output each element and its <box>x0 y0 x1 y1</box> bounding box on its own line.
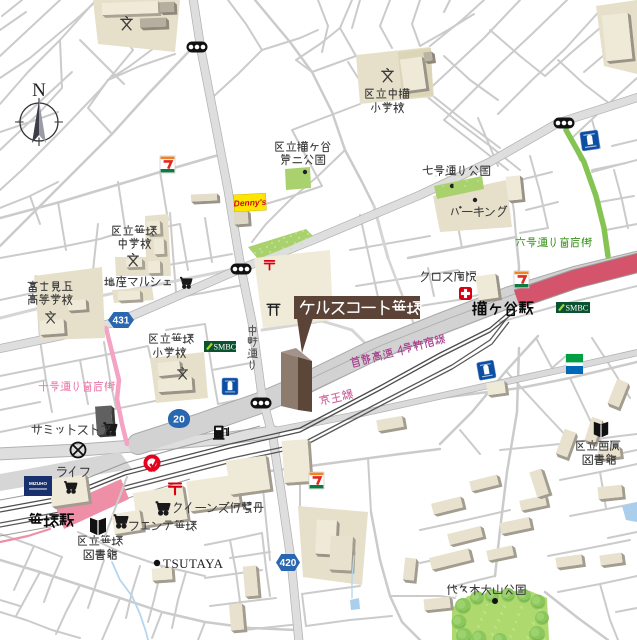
svg-text:MIZUHO: MIZUHO <box>29 481 48 486</box>
svg-text:20: 20 <box>173 414 185 426</box>
svg-text:431: 431 <box>113 316 130 327</box>
svg-text:N: N <box>32 80 46 101</box>
svg-text:LIFE: LIFE <box>149 469 156 473</box>
svg-text:420: 420 <box>280 558 297 569</box>
svg-text:SMBC: SMBC <box>214 342 237 351</box>
svg-text:SMBC: SMBC <box>566 303 589 312</box>
svg-text:Denny's: Denny's <box>233 197 266 209</box>
svg-text:TSUTAYA: TSUTAYA <box>163 556 224 571</box>
